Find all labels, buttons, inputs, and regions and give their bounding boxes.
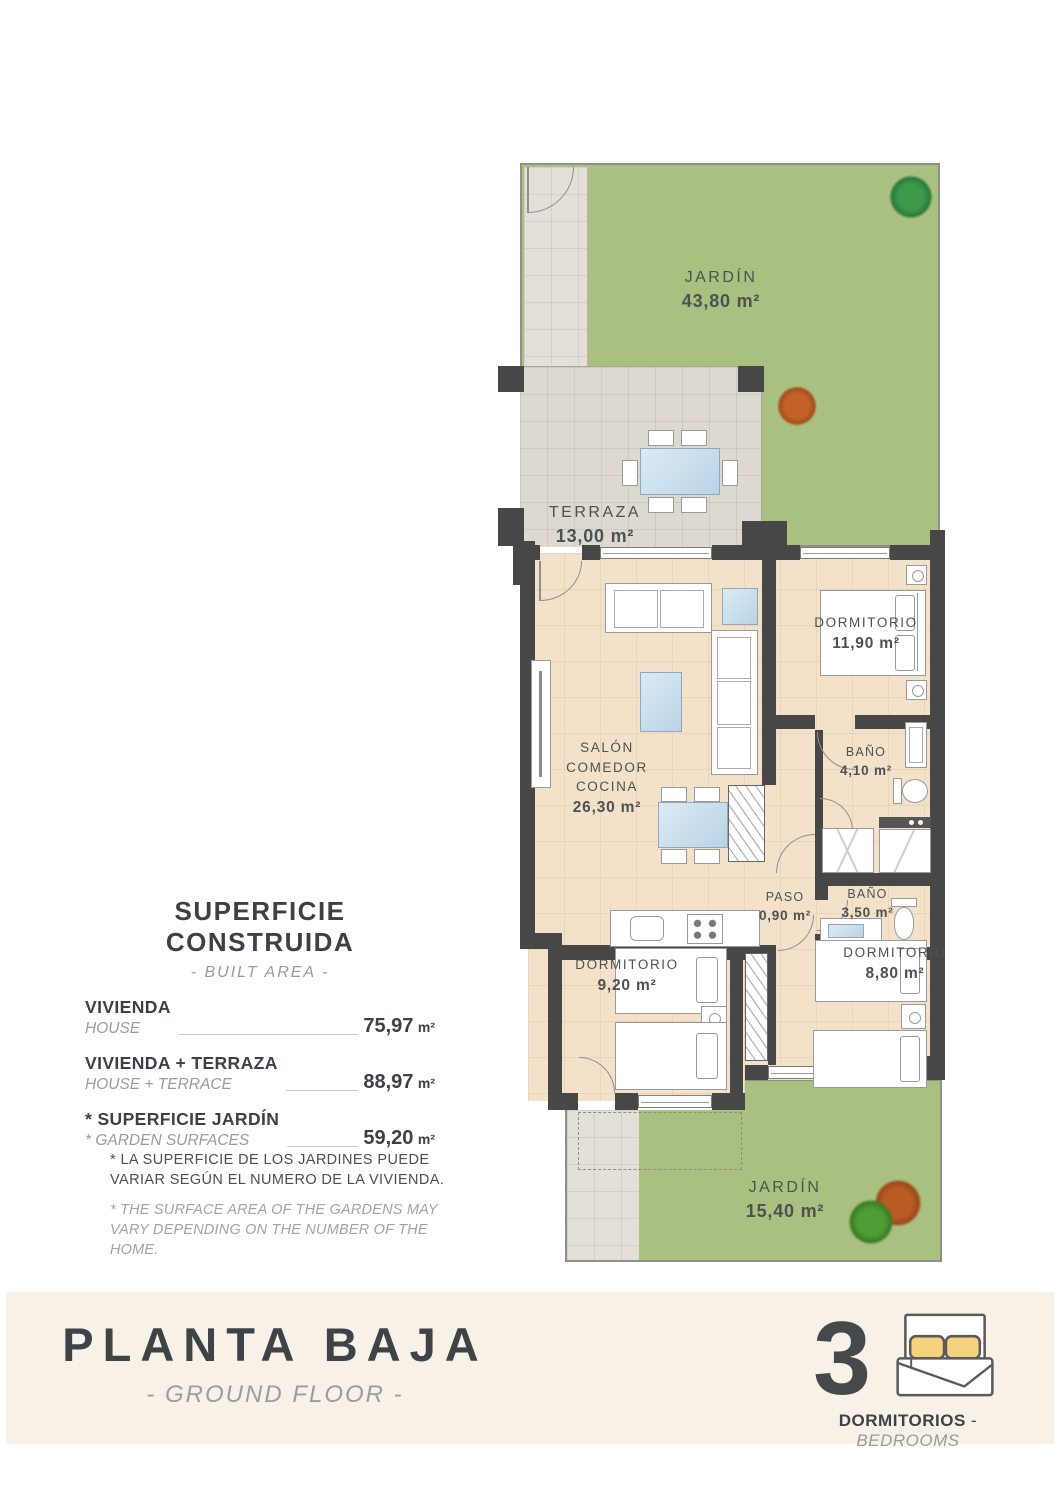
room-label-terraza: TERRAZA13,00 m² — [535, 501, 655, 547]
panel-subtitle: - BUILT AREA - — [85, 964, 435, 982]
bedrooms-caption: DORMITORIOS - BEDROOMS — [788, 1411, 1028, 1451]
room-label-jardin-bottom: JARDÍN15,40 m² — [715, 1176, 855, 1222]
window — [600, 547, 712, 559]
cooktop — [687, 914, 723, 944]
row-label-en: HOUSE + TERRACE — [85, 1076, 278, 1094]
chair — [622, 460, 638, 486]
door-leaf — [527, 167, 529, 213]
row-label-en: * GARDEN SURFACES — [85, 1132, 279, 1150]
chair — [694, 849, 720, 864]
nightstand — [906, 565, 927, 585]
bedrooms-count: 3 — [813, 1317, 871, 1402]
overhang-dashed-outline — [578, 1112, 742, 1170]
room-label-salon: SALÓN COMEDOR COCINA26,30 m² — [552, 738, 662, 817]
nightstand — [906, 680, 927, 700]
bedrooms-label-es: DORMITORIOS — [839, 1411, 966, 1430]
floor-title: PLANTA BAJA — [40, 1317, 510, 1372]
leader-line — [286, 1090, 359, 1091]
room-label-dormitorio-1: DORMITORIO11,90 m² — [796, 613, 936, 653]
window — [800, 547, 890, 559]
area-row-vivienda: VIVIENDA HOUSE 75,97 m² — [85, 997, 435, 1038]
room-label-bano-1: BAÑO4,10 m² — [813, 743, 919, 778]
garden-bottom — [745, 1080, 942, 1262]
sofa — [605, 583, 712, 633]
kitchen-sink — [630, 916, 664, 941]
garden-disclaimer: * LA SUPERFICIE DE LOS JARDINES PUEDE VA… — [110, 1150, 458, 1260]
room-label-jardin-top: JARDÍN43,80 m² — [651, 266, 791, 312]
chair — [681, 430, 707, 446]
dining-table — [658, 802, 728, 848]
row-label-es: * SUPERFICIE JARDÍN — [85, 1109, 279, 1130]
row-value: 59,20 m² — [363, 1127, 435, 1150]
side-table — [722, 588, 758, 625]
sofa — [711, 630, 758, 775]
chair — [648, 430, 674, 446]
wardrobe — [745, 953, 768, 1061]
tree-icon — [888, 174, 934, 220]
leader-line — [179, 1034, 359, 1035]
disclaimer-en: * THE SURFACE AREA OF THE GARDENS MAY VA… — [110, 1200, 458, 1261]
pantry-cabinet — [728, 785, 765, 862]
room-label-paso: PASO0,90 m² — [745, 888, 825, 923]
tv-unit — [531, 660, 551, 788]
chair — [681, 497, 707, 513]
floor-title-block: PLANTA BAJA - GROUND FLOOR - — [40, 1317, 510, 1409]
bed-icon — [887, 1310, 1003, 1402]
nightstand — [901, 1004, 926, 1029]
coffee-table — [640, 672, 682, 732]
chair — [661, 849, 687, 864]
bush-icon — [776, 385, 818, 427]
single-bed — [615, 1022, 727, 1090]
built-area-panel: SUPERFICIE CONSTRUIDA - BUILT AREA - VIV… — [85, 896, 435, 1150]
bedrooms-label-en: BEDROOMS — [856, 1431, 959, 1450]
chair — [661, 787, 687, 802]
leader-line — [287, 1146, 358, 1147]
row-value: 75,97 m² — [363, 1015, 435, 1038]
panel-title: SUPERFICIE CONSTRUIDA — [85, 896, 435, 958]
disclaimer-es: * LA SUPERFICIE DE LOS JARDINES PUEDE VA… — [110, 1150, 458, 1191]
single-bed — [813, 1030, 927, 1088]
floorplan-page: JARDÍN43,80 m² TERRAZA13,00 m² SALÓN COM… — [0, 0, 1060, 1500]
window — [638, 1095, 712, 1108]
floor-plan: JARDÍN43,80 m² TERRAZA13,00 m² SALÓN COM… — [495, 158, 955, 1270]
chair — [722, 460, 738, 486]
floor-subtitle: - GROUND FLOOR - — [40, 1381, 510, 1409]
row-label-es: VIVIENDA — [85, 997, 171, 1018]
chair — [694, 787, 720, 802]
bedrooms-badge: 3 DORMITORIOS - BEDROOMS — [788, 1300, 1028, 1451]
dining-table-terrace — [640, 448, 720, 495]
row-label-es: VIVIENDA + TERRAZA — [85, 1053, 278, 1074]
row-label-en: HOUSE — [85, 1020, 171, 1038]
room-label-dormitorio-2: DORMITORIO9,20 m² — [567, 955, 687, 995]
row-value: 88,97 m² — [363, 1071, 435, 1094]
room-label-bano-2: BAÑO3,50 m² — [821, 885, 914, 920]
shower — [822, 828, 874, 873]
door-leaf — [539, 561, 541, 601]
area-row-vivienda-terraza: VIVIENDA + TERRAZA HOUSE + TERRACE 88,97… — [85, 1053, 435, 1094]
room-label-dormitorio-3: DORMITORIO8,80 m² — [825, 943, 965, 983]
area-row-jardin: * SUPERFICIE JARDÍN * GARDEN SURFACES 59… — [85, 1109, 435, 1150]
